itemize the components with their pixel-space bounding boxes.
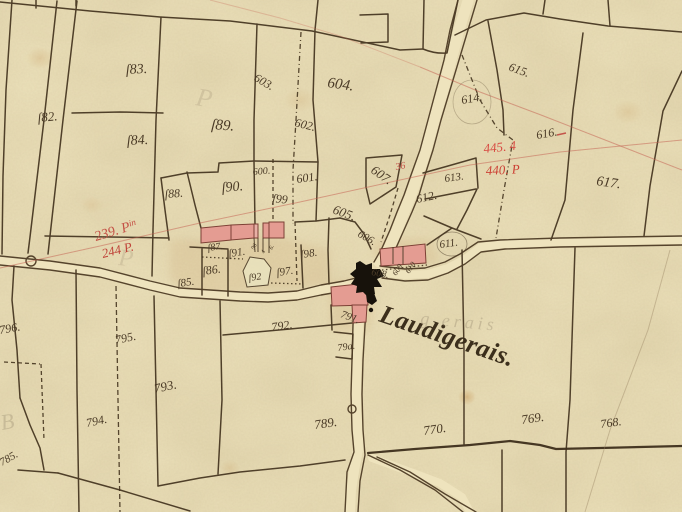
svg-text:789.: 789. [313, 414, 338, 432]
svg-text:769.: 769. [520, 409, 545, 427]
svg-text:ſ89.: ſ89. [211, 117, 235, 135]
svg-text:ſ86.: ſ86. [201, 262, 221, 278]
svg-text:ſ92: ſ92 [248, 271, 262, 284]
svg-text:36: 36 [394, 160, 407, 173]
svg-text:440. P: 440. P [485, 161, 520, 178]
svg-text:ſ90.: ſ90. [221, 179, 244, 196]
svg-text:792.: 792. [270, 317, 293, 334]
svg-text:ſ97.: ſ97. [276, 265, 294, 279]
svg-text:ſ91.: ſ91. [228, 246, 246, 260]
svg-text:ſ82.: ſ82. [37, 108, 58, 125]
svg-text:ſ99: ſ99 [272, 191, 289, 207]
svg-text:770.: 770. [422, 420, 447, 438]
svg-text:600.: 600. [252, 166, 270, 178]
svg-text:611.: 611. [439, 237, 459, 251]
svg-text:ſ85.: ſ85. [177, 276, 195, 290]
svg-text:768.: 768. [599, 414, 622, 431]
svg-text:ſ88.: ſ88. [164, 186, 183, 201]
svg-text:ſ98.: ſ98. [300, 247, 318, 261]
svg-text:ſ84.: ſ84. [126, 133, 148, 149]
svg-text:ſ83.: ſ83. [125, 62, 147, 78]
svg-text:601.: 601. [295, 169, 318, 186]
svg-text:ſ87.: ſ87. [207, 241, 224, 254]
